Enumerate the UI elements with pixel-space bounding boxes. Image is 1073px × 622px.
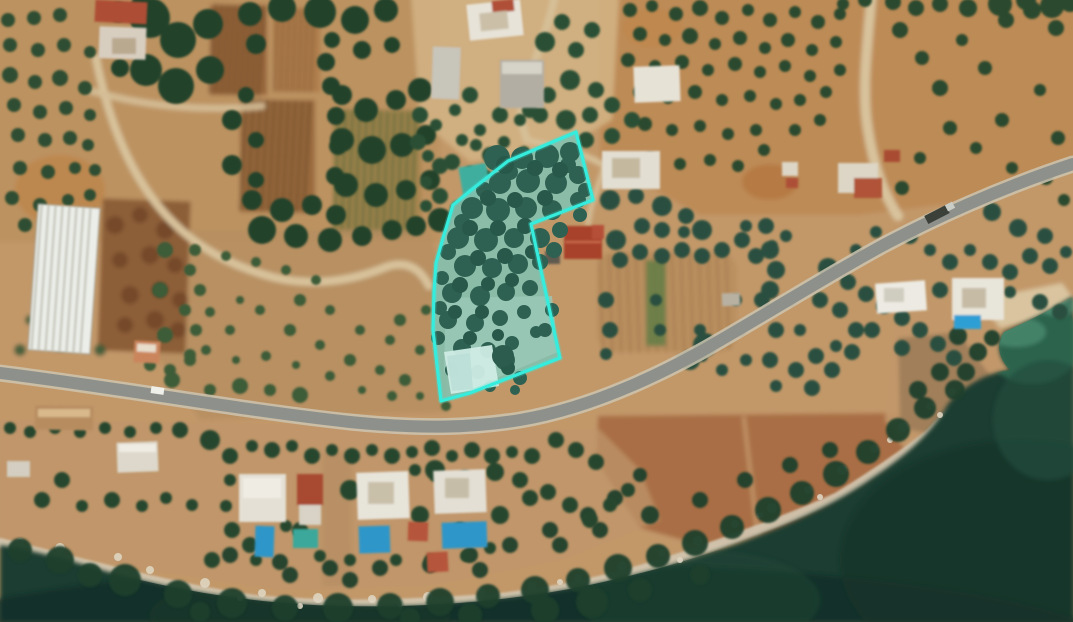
olive-grove [674, 158, 686, 170]
olive-grove [789, 124, 801, 136]
olive-grove [830, 36, 842, 48]
tree-cluster [246, 34, 266, 54]
tree [497, 248, 513, 264]
tree [486, 463, 504, 481]
tree [462, 87, 478, 103]
tree [1037, 228, 1053, 244]
tree [109, 564, 141, 596]
scrub-bushes [325, 305, 335, 315]
tree-cluster [396, 180, 416, 200]
tree [368, 595, 376, 603]
tree [512, 472, 528, 488]
tree [106, 216, 124, 234]
tree [492, 310, 508, 326]
tree [650, 294, 662, 306]
tree [470, 250, 486, 266]
tree [470, 139, 482, 151]
olive-grove [758, 144, 770, 156]
tree [761, 241, 779, 259]
tree [604, 128, 620, 144]
scrub-bushes [315, 340, 325, 350]
tree [782, 457, 798, 473]
olive-grove [742, 4, 754, 16]
tree [200, 430, 220, 450]
olive-grove [638, 117, 652, 131]
tree [491, 506, 509, 524]
tree [892, 22, 908, 38]
tree [535, 32, 555, 52]
scrub-bushes [232, 356, 240, 364]
tree [94, 344, 106, 356]
tree [830, 340, 842, 352]
tree [604, 554, 632, 582]
tree [568, 442, 584, 458]
red-roof-house [94, 0, 147, 24]
tree [1042, 258, 1058, 274]
tree [621, 483, 635, 497]
tree [456, 134, 468, 146]
swimming-pool [359, 525, 391, 553]
tree [258, 589, 266, 597]
scrub-bushes [421, 305, 431, 315]
tree [420, 176, 432, 188]
scrub-bushes [261, 351, 271, 361]
tree [930, 336, 946, 352]
olive-grove [41, 165, 55, 179]
tree [146, 311, 164, 329]
tree [146, 566, 154, 574]
tree-cluster [406, 216, 426, 236]
tree [931, 363, 949, 381]
olive-grove [728, 57, 742, 71]
tree [576, 586, 608, 618]
map-shape [445, 478, 469, 498]
tree [714, 242, 730, 258]
olive-grove [623, 3, 637, 17]
tree [517, 305, 531, 319]
tree [172, 422, 188, 438]
tree [612, 252, 628, 268]
olive-grove [18, 218, 32, 232]
tree [432, 188, 448, 204]
tree [132, 207, 148, 223]
tree [692, 492, 708, 508]
map-shape [299, 505, 321, 525]
tree [542, 522, 558, 538]
olive-grove [27, 11, 41, 25]
tree [160, 492, 172, 504]
tree [652, 196, 672, 216]
olive-grove [1, 13, 15, 27]
scrub-bushes [311, 275, 321, 285]
tree [914, 397, 936, 419]
olive-grove [57, 38, 71, 52]
tree [527, 160, 543, 176]
tree [377, 593, 403, 619]
tree [946, 350, 962, 366]
tree [894, 310, 910, 326]
map-shape [492, 345, 514, 367]
tree [4, 422, 16, 434]
tree [856, 440, 880, 464]
tree [1058, 194, 1070, 206]
tree [222, 547, 238, 563]
tree [914, 152, 926, 164]
scrub-bushes [251, 257, 261, 267]
tree [313, 593, 323, 603]
tree [546, 242, 562, 258]
tree [674, 242, 690, 258]
map-shape [112, 38, 136, 54]
olive-grove [763, 13, 777, 27]
tree-cluster [111, 59, 129, 77]
scrub-bushes [292, 361, 300, 369]
tree [430, 119, 442, 131]
tree [8, 538, 32, 562]
tree [46, 546, 74, 574]
tree [909, 381, 927, 399]
tree-cluster [352, 226, 372, 246]
tree [588, 454, 604, 470]
scrub-bushes [221, 251, 231, 261]
scrub-bushes [355, 325, 365, 335]
scrub-bushes [255, 305, 265, 315]
tree [264, 442, 280, 458]
map-shape [612, 158, 640, 178]
map-shape [592, 225, 604, 239]
tree [606, 230, 626, 250]
tree [384, 448, 400, 464]
tree-cluster [358, 136, 386, 164]
tree [584, 22, 600, 38]
tree-cluster [322, 77, 340, 95]
tree [762, 352, 778, 368]
tree [540, 484, 556, 500]
tree [949, 327, 967, 345]
tree [14, 344, 26, 356]
tree [462, 220, 478, 236]
tree [932, 282, 948, 298]
tree [24, 426, 36, 438]
tree [164, 580, 192, 608]
olive-grove [11, 128, 25, 142]
scrub-bushes [325, 371, 335, 381]
olive-grove [78, 81, 92, 95]
tree [342, 572, 358, 588]
olive-grove [646, 0, 658, 12]
scrub-bushes [201, 345, 211, 355]
map-shape [854, 178, 882, 198]
scrub-bushes [292, 387, 308, 403]
map-shape [786, 178, 798, 188]
olive-grove [806, 44, 818, 56]
tree [167, 257, 183, 273]
tree-cluster [326, 205, 346, 225]
scrub-bushes [284, 324, 296, 336]
building [633, 65, 680, 103]
scrub-bushes [184, 354, 196, 366]
tree-cluster [364, 183, 388, 207]
olive-grove [82, 139, 94, 151]
olive-grove [704, 154, 716, 166]
tree [492, 107, 508, 123]
tree [982, 254, 998, 270]
tree [1009, 219, 1027, 237]
map-shape [962, 288, 986, 308]
satellite-map [0, 0, 1073, 622]
tree [186, 499, 198, 511]
tree [848, 322, 864, 338]
olive-grove [13, 161, 27, 175]
tree [654, 324, 666, 336]
tree [824, 362, 840, 378]
tree-cluster [238, 2, 262, 26]
tree [560, 70, 580, 90]
olive-grove [59, 101, 73, 115]
tree [694, 248, 710, 264]
tree [600, 348, 612, 360]
shed [7, 461, 30, 477]
tree [554, 14, 570, 30]
map-shape [38, 409, 90, 417]
tree [217, 588, 247, 618]
tree [463, 331, 477, 345]
tree [808, 348, 824, 364]
tree [1052, 304, 1068, 320]
olive-grove [814, 114, 826, 126]
scrub-bushes [344, 354, 356, 366]
scrub-bushes [194, 284, 206, 296]
tree [448, 305, 462, 319]
scrub-bushes [294, 294, 306, 306]
tree [832, 302, 848, 318]
tree [823, 461, 849, 487]
tree [600, 190, 620, 210]
tree [323, 593, 353, 622]
red-roof-shed [408, 522, 429, 542]
tree [633, 468, 647, 482]
tree-cluster [354, 98, 378, 122]
tree [476, 584, 500, 608]
olive-grove [633, 27, 647, 41]
olive-grove [53, 8, 67, 22]
tree [908, 0, 924, 16]
scrub-bushes [281, 265, 291, 275]
tree [969, 343, 987, 361]
tree [136, 500, 148, 512]
olive-grove [702, 64, 714, 76]
tree [282, 567, 298, 583]
tree [624, 112, 640, 128]
building [431, 47, 461, 100]
tree [912, 322, 928, 338]
tree [956, 34, 968, 46]
tree [78, 563, 102, 587]
scrub-bushes [164, 364, 176, 376]
tree [740, 220, 752, 232]
tree [894, 340, 910, 356]
tree [104, 492, 120, 508]
tree-cluster [329, 137, 347, 155]
tree [422, 150, 434, 162]
tree [770, 380, 782, 392]
tree [510, 385, 520, 395]
tree [716, 364, 728, 376]
tree [654, 248, 670, 264]
tree [522, 490, 538, 506]
tree [537, 190, 553, 206]
scrub-bushes [264, 384, 276, 396]
olive-grove [62, 194, 74, 206]
tree [505, 273, 519, 287]
tree [1048, 20, 1064, 36]
tree [995, 113, 1009, 127]
olive-grove [33, 105, 47, 119]
red-roof-house [297, 474, 323, 505]
tree [628, 578, 652, 602]
scrub-bushes [416, 392, 424, 400]
tree [654, 222, 670, 238]
tree-cluster [390, 133, 414, 157]
olive-grove [732, 160, 744, 172]
tree [411, 506, 429, 524]
tree-cluster [222, 155, 242, 175]
scrub-bushes [236, 296, 244, 304]
tree [562, 497, 578, 513]
swimming-pool [293, 529, 318, 548]
tree [286, 440, 298, 452]
tree [424, 440, 440, 456]
scrub-bushes [415, 345, 425, 355]
olive-grove [779, 60, 791, 72]
olive-grove [781, 33, 795, 47]
tree [755, 497, 781, 523]
tree [366, 444, 378, 456]
tree [406, 446, 418, 458]
olive-grove [820, 86, 832, 98]
tree [858, 286, 874, 302]
olive-grove [84, 189, 96, 201]
map-shape [502, 62, 542, 74]
tree [1034, 84, 1046, 96]
tree [822, 442, 838, 458]
tree [1051, 131, 1065, 145]
olive-grove [69, 162, 81, 174]
scrub-bushes [189, 244, 201, 256]
olive-grove [789, 6, 801, 18]
tree [474, 124, 486, 136]
tree [34, 492, 50, 508]
tree-cluster [270, 198, 294, 222]
tree [326, 444, 338, 456]
scrub-bushes [232, 378, 248, 394]
tree [224, 522, 240, 538]
tree-cluster [222, 110, 242, 130]
scrub-bushes [394, 314, 406, 326]
tree [1002, 264, 1018, 280]
tree [641, 506, 659, 524]
tree-cluster [160, 22, 196, 58]
scrub-bushes [152, 282, 168, 298]
tree [492, 329, 504, 341]
tree [481, 277, 495, 291]
scrub-bushes [375, 365, 385, 375]
tree [124, 426, 136, 438]
tree-cluster [324, 32, 340, 48]
tree [464, 442, 480, 458]
tree [915, 51, 929, 65]
tree [768, 322, 784, 338]
tree [1032, 294, 1048, 310]
tree [844, 344, 860, 360]
olive-grove [666, 124, 678, 136]
olive-grove [2, 67, 18, 83]
tree [895, 181, 909, 195]
tree [978, 61, 992, 75]
tree [322, 560, 338, 576]
tree [150, 422, 162, 434]
olive-grove [659, 34, 671, 46]
tree-cluster [302, 195, 322, 215]
tree [964, 244, 976, 256]
tree [682, 530, 708, 556]
tree [788, 362, 804, 378]
tree [200, 578, 210, 588]
tree [490, 220, 506, 236]
tree [432, 158, 448, 174]
olive-grove [688, 85, 702, 99]
map-shape [137, 344, 156, 353]
tree [112, 252, 128, 268]
tree [552, 537, 568, 553]
tree-cluster [248, 216, 276, 244]
tree [272, 595, 298, 621]
tree [817, 494, 823, 500]
tree [524, 448, 540, 464]
tree-cluster [238, 87, 254, 103]
tree [117, 317, 133, 333]
swimming-pool [442, 521, 488, 549]
tree [568, 42, 584, 58]
tree [506, 446, 518, 458]
tree-cluster [317, 53, 335, 71]
swimming-pool [254, 526, 274, 558]
tree [224, 474, 236, 486]
tree [484, 448, 500, 464]
tree-cluster [408, 78, 432, 102]
tree [634, 218, 650, 234]
tree [692, 220, 712, 240]
tree [472, 562, 488, 578]
tree-cluster [193, 9, 223, 39]
olive-grove [804, 70, 816, 82]
tree [598, 292, 614, 308]
tree-cluster [196, 56, 224, 84]
tree [628, 188, 644, 204]
tree [603, 498, 617, 512]
olive-grove [63, 131, 77, 145]
tree [1060, 246, 1072, 258]
tree [552, 162, 568, 178]
tree-cluster [341, 6, 369, 34]
tree-cluster [318, 228, 342, 252]
tree-cluster [242, 190, 262, 210]
scrub-bushes [190, 324, 202, 336]
olive-grove [621, 53, 635, 67]
olive-grove [84, 109, 96, 121]
olive-grove [794, 94, 806, 106]
tree [886, 418, 910, 442]
